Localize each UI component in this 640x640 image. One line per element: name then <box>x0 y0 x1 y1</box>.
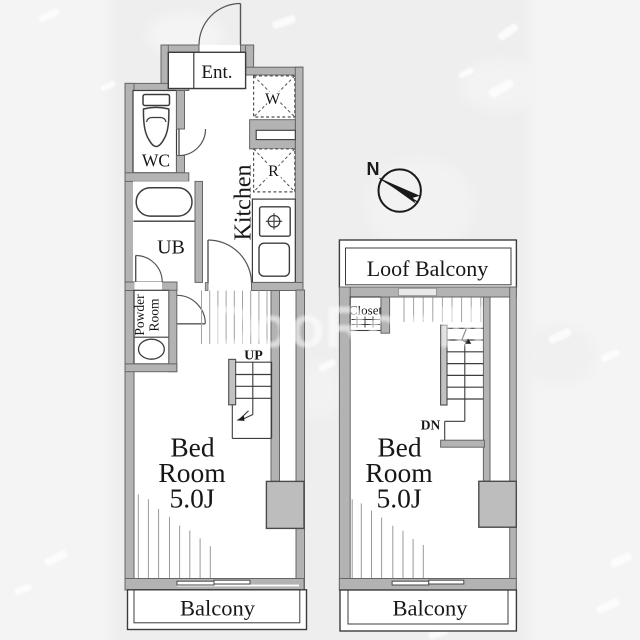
svg-text:WC: WC <box>142 151 170 171</box>
svg-text:DN: DN <box>421 418 441 433</box>
svg-text:Ent.: Ent. <box>201 62 232 83</box>
svg-text:DooRooM: DooRooM <box>212 295 486 360</box>
svg-text:Room: Room <box>147 298 162 332</box>
svg-text:R: R <box>268 163 279 180</box>
svg-text:W: W <box>265 91 281 108</box>
svg-text:Kitchen: Kitchen <box>231 165 257 241</box>
svg-text:Powder: Powder <box>132 294 147 336</box>
svg-text:5.0J: 5.0J <box>169 483 214 514</box>
svg-text:5.0J: 5.0J <box>376 483 421 514</box>
svg-text:Balcony: Balcony <box>393 596 469 621</box>
svg-text:N: N <box>367 159 380 179</box>
svg-text:Loof Balcony: Loof Balcony <box>367 256 489 281</box>
svg-text:UB: UB <box>157 237 185 259</box>
svg-text:Balcony: Balcony <box>180 596 256 621</box>
